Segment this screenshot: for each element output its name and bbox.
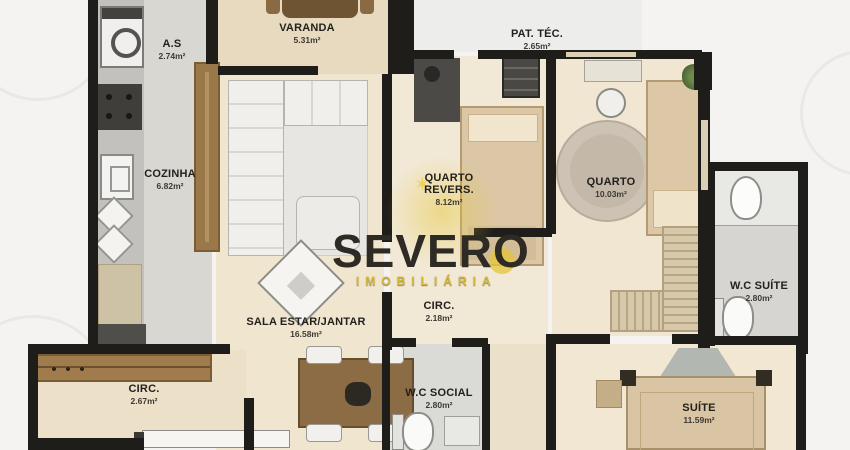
wall: [706, 162, 806, 171]
room-label-pat-tec: PAT. TÉC. 2.65m²: [511, 28, 563, 51]
window: [701, 120, 708, 190]
sink: [444, 416, 480, 446]
room-name: W.C SUÍTE: [730, 280, 788, 292]
stove-icon: [98, 84, 142, 130]
tall-cabinet: [194, 62, 220, 252]
dining-chair: [306, 424, 342, 442]
room-area: 2.80m²: [730, 293, 788, 303]
wall: [706, 336, 806, 345]
wall: [796, 344, 806, 450]
nightstand: [596, 380, 622, 408]
window: [566, 52, 636, 57]
room-area: 8.12m²: [406, 197, 492, 207]
room-label-circ-centro: CIRC. 2.18m²: [424, 300, 455, 323]
room-label-sala: SALA ESTAR/JANTAR 16.58m²: [241, 316, 371, 339]
balcony-chair: [266, 0, 280, 14]
wall: [88, 0, 98, 352]
wall: [218, 66, 318, 75]
room-label-circ-entrada: CIRC. 2.67m²: [129, 383, 160, 406]
floor-corridor-south: [488, 344, 548, 450]
room-name: QUARTO REVERS.: [406, 172, 492, 196]
wall: [672, 334, 708, 344]
kitchen-sink: [100, 154, 134, 200]
washing-machine: [100, 6, 144, 68]
wall: [482, 344, 490, 450]
desk: [584, 60, 642, 82]
balcony-chair: [360, 0, 374, 14]
background-logo-circle: [800, 50, 850, 176]
entry-door: [142, 430, 290, 448]
sink: [730, 176, 762, 220]
watermark-brand: SEVERO: [332, 228, 530, 274]
wall: [28, 344, 230, 354]
wall: [28, 344, 38, 450]
wall: [546, 334, 556, 450]
room-label-cozinha: COZINHA 6.82m²: [144, 168, 196, 191]
room-label-quarto-revers: QUARTO REVERS. 8.12m²: [406, 172, 492, 207]
wall: [382, 344, 390, 450]
room-label-quarto: QUARTO 10.03m²: [587, 176, 636, 199]
bed-post: [620, 370, 636, 386]
kitchen-counter: [98, 264, 142, 328]
room-area: 2.67m²: [129, 396, 160, 406]
room-area: 16.58m²: [241, 329, 371, 339]
wall: [798, 162, 808, 354]
bed-single: [646, 80, 704, 236]
room-name: PAT. TÉC.: [511, 28, 563, 40]
room-name: CIRC.: [424, 300, 455, 312]
room-area: 2.74m²: [159, 51, 186, 61]
room-area: 5.31m²: [279, 35, 335, 45]
sofa: [228, 80, 284, 256]
balcony-table: [282, 0, 358, 18]
room-name: COZINHA: [144, 168, 196, 180]
ac-unit: [502, 56, 540, 98]
room-area: 11.59m²: [682, 415, 715, 425]
room-name: W.C SOCIAL: [405, 387, 472, 399]
wall: [388, 0, 414, 74]
room-name: A.S: [159, 38, 186, 50]
sideboard: [36, 354, 212, 382]
room-area: 2.18m²: [424, 313, 455, 323]
watermark-subtitle: IMOBILIÁRIA: [356, 274, 497, 288]
wall: [206, 0, 218, 64]
room-area: 10.03m²: [587, 189, 636, 199]
room-name: SALA ESTAR/JANTAR: [241, 316, 371, 328]
room-area: 2.80m²: [405, 400, 472, 410]
room-label-wc-social: W.C SOCIAL 2.80m²: [405, 387, 472, 410]
room-label-suite: SUÍTE 11.59m²: [682, 402, 715, 425]
wall: [28, 438, 144, 450]
room-name: QUARTO: [587, 176, 636, 188]
round-rug: [556, 120, 658, 222]
room-label-wc-suite: W.C SUÍTE 2.80m²: [730, 280, 788, 303]
wall: [414, 50, 454, 59]
room-name: VARANDA: [279, 22, 335, 34]
room-label-varanda: VARANDA 5.31m²: [279, 22, 335, 45]
room-area: 2.65m²: [511, 41, 563, 51]
bed-post: [756, 370, 772, 386]
room-label-as: A.S 2.74m²: [159, 38, 186, 61]
floor-plan: A.S 2.74m² VARANDA 5.31m² PAT. TÉC. 2.65…: [0, 0, 850, 450]
room-area: 6.82m²: [144, 181, 196, 191]
wall: [244, 398, 254, 450]
desk-chair: [596, 88, 626, 118]
wall: [546, 56, 556, 234]
room-name: CIRC.: [129, 383, 160, 395]
room-name: SUÍTE: [682, 402, 715, 414]
tv-desk-unit: [414, 58, 460, 122]
sofa-section: [284, 80, 368, 126]
toilet: [402, 412, 434, 450]
dining-chair: [306, 346, 342, 364]
